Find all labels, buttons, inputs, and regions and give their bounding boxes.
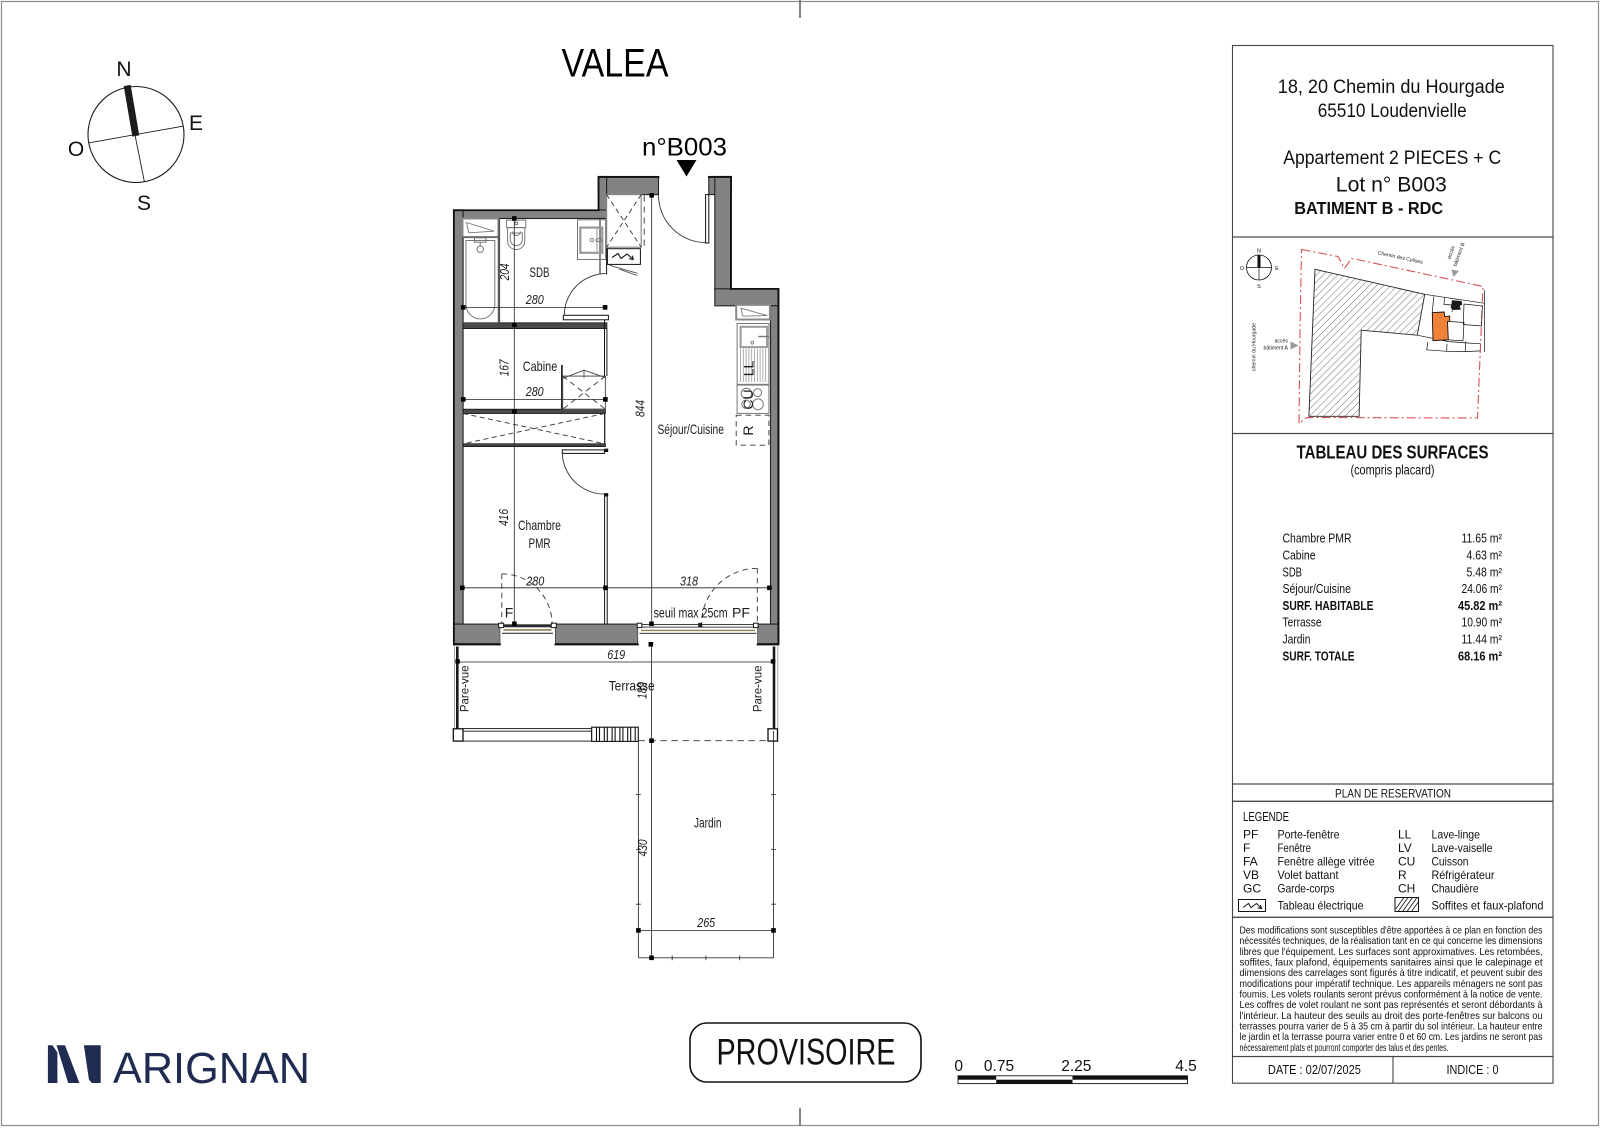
svg-text:dimensions des carrelages sont: dimensions des carrelages sont figurés à… — [1240, 968, 1543, 979]
svg-text:Chaudière: Chaudière — [1432, 882, 1479, 896]
svg-text:F: F — [505, 605, 514, 621]
svg-text:265: 265 — [696, 916, 715, 930]
svg-text:chemin du Hourgade: chemin du Hourgade — [1252, 323, 1258, 371]
svg-text:N: N — [1257, 249, 1261, 255]
svg-text:Cuisson: Cuisson — [1432, 855, 1469, 869]
svg-text:Séjour/Cuisine: Séjour/Cuisine — [1283, 581, 1352, 596]
svg-text:nécessités techniques, de la r: nécessités techniques, de la réalisation… — [1240, 936, 1543, 947]
svg-text:PF: PF — [1243, 828, 1258, 842]
svg-text:Terrasse: Terrasse — [1283, 615, 1322, 630]
svg-text:4.63 m²: 4.63 m² — [1467, 548, 1503, 563]
svg-text:Fenêtre allège vitrée: Fenêtre allège vitrée — [1278, 855, 1375, 869]
svg-text:INDICE : 0: INDICE : 0 — [1447, 1062, 1499, 1077]
svg-text:Pare-vue: Pare-vue — [460, 665, 472, 712]
svg-text:10.90 m²: 10.90 m² — [1462, 615, 1503, 630]
svg-text:PF: PF — [732, 605, 750, 621]
svg-text:Séjour/Cuisine: Séjour/Cuisine — [657, 421, 724, 437]
svg-text:Cabine: Cabine — [1283, 548, 1316, 563]
svg-text:Lave-linge: Lave-linge — [1432, 828, 1481, 842]
svg-text:Pare-vue: Pare-vue — [753, 665, 765, 712]
svg-text:S: S — [137, 192, 151, 215]
svg-text:Des modifications sont suscept: Des modifications sont susceptibles d'êt… — [1240, 926, 1543, 937]
svg-text:modifications pour impératif t: modifications pour impératif technique. … — [1240, 979, 1543, 990]
svg-text:GC: GC — [1243, 882, 1261, 896]
svg-text:0: 0 — [954, 1058, 963, 1075]
svg-text:DATE : 02/07/2025: DATE : 02/07/2025 — [1268, 1062, 1361, 1077]
svg-text:318: 318 — [680, 575, 698, 589]
svg-text:68.16 m²: 68.16 m² — [1458, 648, 1503, 663]
svg-text:SDB: SDB — [530, 264, 550, 280]
svg-text:Cabine: Cabine — [523, 358, 558, 374]
svg-text:430: 430 — [636, 839, 650, 856]
svg-text:PROVISOIRE: PROVISOIRE — [717, 1032, 896, 1073]
svg-text:LL: LL — [1398, 828, 1412, 842]
svg-text:Lot n° B003: Lot n° B003 — [1336, 174, 1447, 197]
svg-text:Porte-fenêtre: Porte-fenêtre — [1278, 828, 1340, 842]
svg-text:844: 844 — [634, 400, 648, 417]
svg-text:PLAN DE RESERVATION: PLAN DE RESERVATION — [1335, 786, 1451, 800]
svg-text:TABLEAU DES SURFACES: TABLEAU DES SURFACES — [1297, 442, 1489, 463]
svg-text:bâtiment B: bâtiment B — [1452, 241, 1466, 267]
svg-text:65510 Loudenvielle: 65510 Loudenvielle — [1318, 101, 1467, 122]
svg-text:SDB: SDB — [1283, 564, 1303, 579]
svg-text:accès: accès — [1274, 339, 1288, 345]
svg-text:Jardin: Jardin — [694, 814, 722, 830]
svg-text:F: F — [1243, 841, 1250, 855]
svg-text:VB: VB — [1243, 868, 1259, 882]
svg-text:Soffites et faux-plafond: Soffites et faux-plafond — [1432, 899, 1544, 913]
svg-text:LEGENDE: LEGENDE — [1243, 810, 1289, 824]
svg-text:SURF. TOTALE: SURF. TOTALE — [1283, 648, 1355, 663]
svg-text:Terrasse: Terrasse — [609, 677, 655, 693]
svg-text:Jardin: Jardin — [1283, 632, 1311, 647]
svg-text:619: 619 — [607, 648, 625, 662]
svg-text:libres que l'équipement. Les s: libres que l'équipement. Les surfaces so… — [1240, 947, 1543, 958]
svg-text:(compris placard): (compris placard) — [1351, 463, 1435, 478]
svg-text:5.48 m²: 5.48 m² — [1467, 564, 1503, 579]
svg-text:seuil max 25cm: seuil max 25cm — [654, 605, 728, 621]
svg-text:4.5: 4.5 — [1175, 1058, 1197, 1075]
svg-text:CU: CU — [1398, 855, 1415, 869]
svg-text:Les coffres de volet roulant n: Les coffres de volet roulant ne sont pas… — [1240, 1000, 1543, 1011]
svg-text:l'intérieur. La hauteur des se: l'intérieur. La hauteur des seuils au dr… — [1240, 1011, 1543, 1022]
svg-text:11.65 m²: 11.65 m² — [1462, 531, 1503, 546]
svg-text:45.82 m²: 45.82 m² — [1458, 598, 1503, 613]
svg-text:Volet battant: Volet battant — [1278, 868, 1340, 882]
svg-text:E: E — [189, 112, 203, 135]
svg-text:Chemin des Cytises: Chemin des Cytises — [1377, 250, 1424, 266]
svg-text:Fenêtre: Fenêtre — [1278, 841, 1312, 855]
svg-text:Tableau électrique: Tableau électrique — [1278, 899, 1364, 913]
svg-text:R: R — [1398, 868, 1407, 882]
svg-text:terrasses pourra varier de 5 à: terrasses pourra varier de 5 à 35 cm à p… — [1240, 1021, 1543, 1032]
svg-text:N: N — [116, 58, 131, 81]
svg-text:SURF. HABITABLE: SURF. HABITABLE — [1283, 598, 1374, 613]
svg-text:24.06 m²: 24.06 m² — [1462, 581, 1503, 596]
svg-text:FA: FA — [1243, 855, 1258, 869]
svg-text:416: 416 — [497, 509, 511, 526]
svg-text:VALEA: VALEA — [562, 42, 669, 86]
svg-text:BATIMENT B - RDC: BATIMENT B - RDC — [1294, 198, 1443, 218]
svg-text:soffites, faux plafond, équipe: soffites, faux plafond, équipements sani… — [1240, 958, 1543, 969]
svg-text:LV: LV — [1398, 841, 1412, 855]
svg-text:LL: LL — [741, 361, 757, 377]
svg-text:280: 280 — [525, 385, 544, 399]
svg-text:Réfrigérateur: Réfrigérateur — [1432, 868, 1495, 882]
svg-text:Appartement 2 PIECES + C: Appartement 2 PIECES + C — [1283, 148, 1501, 169]
svg-text:Garde-corps: Garde-corps — [1278, 882, 1335, 896]
svg-text:Chambre PMR: Chambre PMR — [1283, 531, 1352, 546]
svg-text:le jardin et la terrasse pourr: le jardin et la terrasse pourra varier e… — [1240, 1032, 1543, 1043]
svg-text:18, 20 Chemin du Hourgade: 18, 20 Chemin du Hourgade — [1278, 77, 1505, 98]
svg-text:E: E — [1275, 266, 1279, 272]
svg-text:Chambre: Chambre — [518, 517, 561, 533]
svg-text:Lave-vaiselle: Lave-vaiselle — [1432, 841, 1493, 855]
svg-text:280: 280 — [525, 575, 544, 589]
svg-text:CH: CH — [1398, 882, 1415, 896]
svg-text:167: 167 — [497, 359, 511, 377]
svg-text:S: S — [1257, 284, 1261, 290]
svg-text:n°B003: n°B003 — [642, 134, 727, 162]
svg-text:2.25: 2.25 — [1061, 1058, 1091, 1075]
svg-text:PMR: PMR — [529, 535, 551, 551]
svg-text:O: O — [1240, 266, 1245, 272]
svg-text:R: R — [740, 425, 756, 435]
svg-text:0.75: 0.75 — [984, 1058, 1014, 1075]
svg-text:280: 280 — [525, 293, 544, 307]
svg-text:nécessairement plats et pourro: nécessairement plats et pourront comport… — [1240, 1043, 1449, 1054]
svg-text:ARIGNAN: ARIGNAN — [113, 1044, 310, 1093]
svg-text:204: 204 — [498, 263, 512, 281]
svg-text:O: O — [68, 138, 84, 161]
svg-text:bâtiment A: bâtiment A — [1263, 346, 1288, 352]
svg-text:11.44 m²: 11.44 m² — [1462, 632, 1503, 647]
svg-text:CU: CU — [740, 389, 756, 409]
svg-text:fournis. Les volets roulants s: fournis. Les volets roulants seront prév… — [1240, 990, 1543, 1001]
